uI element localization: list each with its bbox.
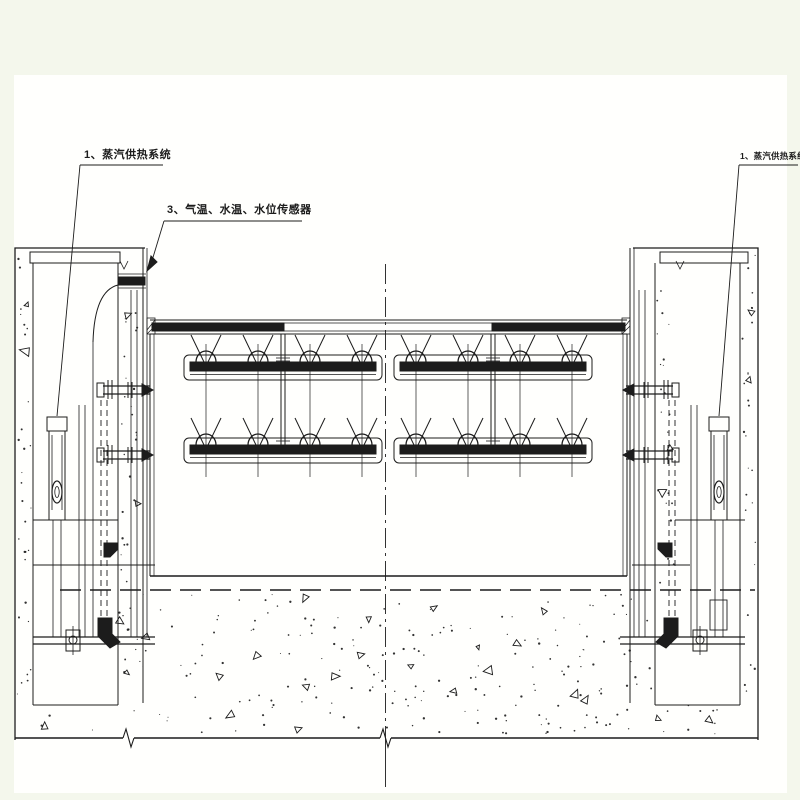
label-steam-system-left: 1、蒸汽供热系统 <box>84 147 171 161</box>
sensor-conduit <box>118 277 145 285</box>
engineering-drawing: 1、蒸汽供热系统 3、气温、水温、水位传感器 1、蒸汽供热系统 <box>0 0 800 800</box>
label-sensors: 3、气温、水温、水位传感器 <box>167 202 312 216</box>
paper-area <box>14 75 787 793</box>
gate-top-beam-right <box>492 323 625 331</box>
drawing-sheet: 1、蒸汽供热系统 3、气温、水温、水位传感器 1、蒸汽供热系统 <box>0 0 800 800</box>
gate-top-beam-left <box>152 323 284 331</box>
label-steam-system-right: 1、蒸汽供热系统 <box>740 151 800 161</box>
